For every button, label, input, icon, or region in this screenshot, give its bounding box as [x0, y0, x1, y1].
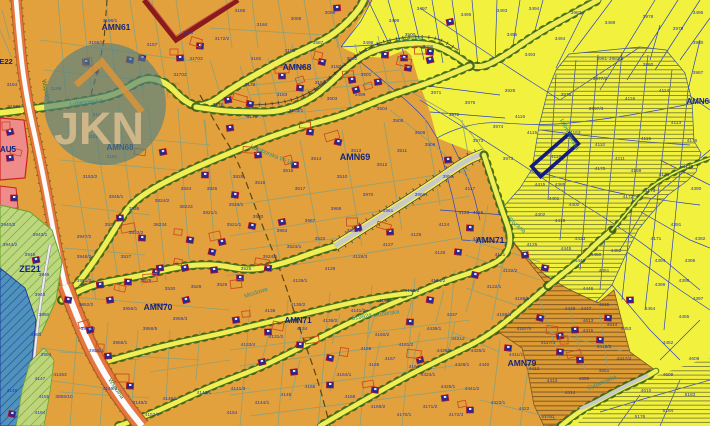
svg-text:4394: 4394 — [655, 258, 666, 264]
svg-text:4110: 4110 — [595, 142, 606, 148]
svg-text:3495: 3495 — [693, 10, 704, 16]
svg-text:3514: 3514 — [311, 156, 322, 162]
svg-text:4160/2: 4160/2 — [375, 332, 390, 338]
svg-text:3164: 3164 — [7, 82, 18, 88]
svg-text:4125: 4125 — [527, 242, 538, 248]
svg-text:3926: 3926 — [505, 88, 516, 94]
svg-text:3952/2: 3952/2 — [79, 302, 94, 308]
svg-text:38234: 38234 — [153, 222, 167, 228]
svg-text:3506: 3506 — [415, 130, 426, 136]
svg-text:4147: 4147 — [35, 376, 46, 382]
svg-text:4615: 4615 — [599, 302, 610, 308]
svg-text:4113: 4113 — [671, 120, 682, 126]
svg-text:3955/10: 3955/10 — [55, 394, 73, 400]
svg-text:3488: 3488 — [605, 20, 616, 26]
svg-text:44212: 44212 — [451, 336, 465, 342]
svg-text:3956/1: 3956/1 — [123, 306, 138, 312]
svg-text:31703: 31703 — [189, 56, 203, 62]
svg-text:3945: 3945 — [25, 252, 36, 258]
svg-text:4169/2: 4169/2 — [371, 404, 386, 410]
svg-text:3183: 3183 — [277, 92, 288, 98]
svg-text:31702: 31702 — [173, 72, 187, 78]
svg-text:4164/2: 4164/2 — [431, 278, 446, 284]
svg-text:4154: 4154 — [227, 410, 238, 416]
svg-text:4171/2: 4171/2 — [423, 404, 438, 410]
svg-text:4449: 4449 — [575, 258, 586, 264]
svg-text:4169: 4169 — [631, 168, 642, 174]
svg-text:4170/1: 4170/1 — [397, 412, 412, 418]
svg-text:4115: 4115 — [527, 130, 538, 136]
svg-text:4124: 4124 — [439, 222, 450, 228]
svg-text:3182: 3182 — [251, 56, 262, 62]
svg-text:4418: 4418 — [555, 218, 566, 224]
svg-text:3997/3: 3997/3 — [589, 106, 604, 112]
svg-text:3523/1: 3523/1 — [287, 244, 302, 250]
svg-text:3086: 3086 — [325, 10, 336, 16]
svg-text:4170: 4170 — [595, 166, 606, 172]
svg-text:4415: 4415 — [535, 182, 546, 188]
svg-text:3940/2: 3940/2 — [1, 222, 16, 228]
svg-text:4161/2: 4161/2 — [399, 342, 414, 348]
svg-text:4111: 4111 — [615, 156, 625, 162]
svg-text:3967: 3967 — [305, 218, 316, 224]
svg-text:4445: 4445 — [561, 246, 572, 252]
svg-text:4115: 4115 — [641, 136, 652, 142]
svg-text:3961: 3961 — [383, 208, 394, 214]
svg-text:4395: 4395 — [685, 258, 696, 264]
svg-text:4118: 4118 — [473, 210, 484, 216]
svg-text:4117: 4117 — [465, 186, 476, 192]
svg-text:3959: 3959 — [443, 174, 454, 180]
svg-text:3530: 3530 — [165, 286, 176, 292]
svg-text:4452: 4452 — [663, 340, 674, 346]
svg-text:3501: 3501 — [361, 72, 372, 78]
svg-text:4116: 4116 — [515, 114, 526, 120]
svg-text:AMN71: AMN71 — [284, 316, 312, 325]
svg-text:4155: 4155 — [39, 394, 50, 400]
svg-text:4448: 4448 — [565, 306, 576, 312]
svg-text:3524/1: 3524/1 — [263, 254, 278, 260]
svg-text:4131/2: 4131/2 — [269, 334, 284, 340]
svg-text:4441/2: 4441/2 — [465, 386, 480, 392]
svg-text:4168/3: 4168/3 — [497, 312, 512, 318]
svg-text:4440: 4440 — [479, 362, 490, 368]
svg-text:3184: 3184 — [257, 22, 268, 28]
svg-text:4125: 4125 — [411, 232, 422, 238]
svg-text:3172/2: 3172/2 — [215, 36, 230, 42]
svg-text:AU5: AU5 — [0, 145, 17, 154]
svg-text:4614: 4614 — [607, 322, 618, 328]
svg-text:3974: 3974 — [493, 124, 504, 130]
svg-text:4146/1: 4146/1 — [163, 396, 178, 402]
svg-text:3157: 3157 — [147, 42, 158, 48]
svg-text:4122/2: 4122/2 — [503, 268, 518, 274]
svg-text:4422: 4422 — [519, 406, 530, 412]
svg-text:4146/2: 4146/2 — [133, 400, 148, 406]
svg-text:3977/2: 3977/2 — [593, 76, 608, 82]
svg-text:3968: 3968 — [331, 206, 342, 212]
svg-text:3962/1: 3962/1 — [347, 228, 362, 234]
svg-text:5183: 5183 — [685, 392, 696, 398]
svg-text:4398: 4398 — [679, 278, 690, 284]
svg-text:3948/2: 3948/2 — [77, 254, 92, 260]
svg-text:4437: 4437 — [447, 312, 458, 318]
svg-text:3494: 3494 — [555, 36, 566, 42]
svg-text:3880: 3880 — [643, 62, 654, 68]
svg-text:4166: 4166 — [305, 384, 316, 390]
svg-text:3517: 3517 — [295, 186, 306, 192]
svg-text:4397: 4397 — [693, 296, 704, 302]
svg-text:3587: 3587 — [313, 40, 324, 46]
svg-text:3980: 3980 — [693, 40, 704, 46]
svg-text:4171: 4171 — [651, 236, 662, 242]
svg-text:3876: 3876 — [465, 100, 476, 106]
svg-text:5184: 5184 — [663, 408, 674, 414]
svg-text:4454: 4454 — [645, 306, 656, 312]
svg-text:AMN79: AMN79 — [508, 358, 537, 368]
svg-text:3495: 3495 — [507, 32, 518, 38]
svg-text:4433: 4433 — [575, 236, 586, 242]
svg-text:3824/2: 3824/2 — [155, 198, 170, 204]
svg-text:3503: 3503 — [327, 96, 338, 102]
svg-text:4141/3: 4141/3 — [231, 386, 246, 392]
svg-text:4148: 4148 — [7, 388, 18, 394]
svg-text:3522: 3522 — [315, 236, 326, 242]
svg-text:3527: 3527 — [121, 254, 132, 260]
svg-text:41453: 41453 — [53, 372, 67, 378]
svg-text:4401: 4401 — [549, 196, 560, 202]
svg-text:4413: 4413 — [547, 378, 558, 384]
svg-text:3521/1: 3521/1 — [227, 222, 242, 228]
svg-text:3088: 3088 — [291, 16, 302, 22]
svg-text:3178: 3178 — [245, 82, 256, 88]
svg-text:4428/1: 4428/1 — [455, 362, 470, 368]
svg-text:3958/4: 3958/4 — [89, 348, 104, 354]
svg-text:3495: 3495 — [461, 12, 472, 18]
svg-text:3176: 3176 — [213, 102, 224, 108]
svg-text:51761: 51761 — [541, 414, 555, 420]
svg-text:4153/2: 4153/2 — [145, 412, 160, 418]
svg-text:3525: 3525 — [241, 266, 252, 272]
svg-text:4439/1: 4439/1 — [437, 348, 452, 354]
svg-text:4167/4: 4167/4 — [517, 326, 532, 332]
svg-text:3509: 3509 — [425, 142, 436, 148]
svg-text:3948: 3948 — [35, 292, 46, 298]
svg-text:4164/1: 4164/1 — [337, 372, 352, 378]
svg-text:3960: 3960 — [415, 192, 426, 198]
svg-text:3970: 3970 — [363, 192, 374, 198]
svg-text:3493: 3493 — [525, 52, 536, 58]
svg-text:3944/2: 3944/2 — [3, 242, 18, 248]
svg-text:4426/1: 4426/1 — [471, 348, 486, 354]
svg-text:4417/4: 4417/4 — [617, 356, 632, 362]
svg-text:3526: 3526 — [217, 282, 228, 288]
svg-text:4172: 4172 — [623, 194, 634, 200]
svg-text:4176: 4176 — [687, 138, 698, 144]
svg-text:4194: 4194 — [35, 410, 46, 416]
svg-text:4126: 4126 — [435, 250, 446, 256]
svg-text:4447: 4447 — [581, 306, 592, 312]
svg-text:4168/5: 4168/5 — [515, 296, 530, 302]
svg-text:3537: 3537 — [105, 222, 116, 228]
svg-text:4116: 4116 — [625, 96, 636, 102]
svg-text:4123: 4123 — [459, 210, 470, 216]
svg-text:4392: 4392 — [695, 236, 706, 242]
svg-text:4141/2: 4141/2 — [351, 308, 366, 314]
svg-text:3971: 3971 — [431, 90, 442, 96]
svg-text:4414: 4414 — [565, 390, 576, 396]
svg-text:3516: 3516 — [255, 180, 266, 186]
svg-text:E22: E22 — [0, 57, 13, 66]
svg-text:4127: 4127 — [383, 242, 394, 248]
svg-text:3497: 3497 — [417, 6, 428, 12]
svg-text:AMN69: AMN69 — [340, 152, 371, 162]
svg-text:3499: 3499 — [389, 18, 400, 24]
svg-text:4608: 4608 — [689, 356, 700, 362]
svg-text:4172/3: 4172/3 — [449, 412, 464, 418]
svg-text:3955/3: 3955/3 — [81, 326, 96, 332]
svg-text:3963: 3963 — [277, 228, 288, 234]
svg-text:JKN: JKN — [54, 103, 144, 154]
svg-text:3821/1: 3821/1 — [203, 210, 218, 216]
svg-text:4452: 4452 — [611, 248, 622, 254]
svg-text:4453: 4453 — [621, 326, 632, 332]
svg-text:3494: 3494 — [529, 6, 540, 12]
svg-text:3515: 3515 — [283, 168, 294, 174]
svg-text:4121: 4121 — [495, 252, 506, 258]
svg-text:3153/2: 3153/2 — [83, 174, 98, 180]
svg-text:3973: 3973 — [473, 138, 484, 144]
svg-text:4164: 4164 — [409, 364, 420, 370]
svg-text:4450: 4450 — [591, 252, 602, 258]
svg-text:4610: 4610 — [641, 388, 652, 394]
svg-text:3951/2: 3951/2 — [77, 278, 92, 284]
svg-text:4167: 4167 — [385, 356, 396, 362]
svg-text:3954: 3954 — [41, 352, 52, 358]
svg-text:3978: 3978 — [643, 14, 654, 20]
svg-text:3958/1: 3958/1 — [113, 340, 128, 346]
svg-text:4143/1: 4143/1 — [197, 390, 212, 396]
svg-text:4117/3: 4117/3 — [541, 340, 556, 346]
svg-text:4451: 4451 — [599, 268, 610, 274]
svg-text:4416/3: 4416/3 — [597, 344, 612, 350]
svg-text:4114: 4114 — [659, 88, 670, 94]
svg-text:3175: 3175 — [247, 114, 258, 120]
svg-text:4136: 4136 — [265, 308, 276, 314]
svg-text:3826: 3826 — [233, 174, 244, 180]
svg-text:4159: 4159 — [361, 346, 372, 352]
svg-text:4165: 4165 — [369, 362, 380, 368]
svg-text:3198: 3198 — [183, 30, 194, 36]
svg-text:3496: 3496 — [363, 40, 374, 46]
svg-text:3512: 3512 — [377, 162, 388, 168]
svg-text:3953: 3953 — [31, 332, 42, 338]
svg-text:4455: 4455 — [679, 314, 690, 320]
svg-text:3947/2: 3947/2 — [77, 234, 92, 240]
svg-text:4651: 4651 — [599, 368, 610, 374]
svg-text:3824: 3824 — [181, 186, 192, 192]
svg-text:4129: 4129 — [325, 266, 336, 272]
svg-text:4438/1: 4438/1 — [427, 326, 442, 332]
svg-text:4168: 4168 — [345, 394, 356, 400]
svg-text:4446: 4446 — [583, 286, 594, 292]
svg-text:4613: 4613 — [583, 318, 594, 324]
svg-text:38223: 38223 — [179, 204, 193, 210]
svg-text:4163/2: 4163/2 — [405, 288, 420, 294]
svg-text:4650: 4650 — [579, 376, 590, 382]
svg-text:3181: 3181 — [315, 80, 326, 86]
svg-text:4142: 4142 — [379, 298, 390, 304]
svg-text:3496: 3496 — [423, 44, 434, 50]
svg-text:3979: 3979 — [673, 26, 684, 32]
svg-text:AMN64: AMN64 — [686, 97, 710, 106]
svg-text:3833/2: 3833/2 — [129, 230, 144, 236]
svg-text:4175: 4175 — [683, 164, 694, 170]
svg-text:4145: 4145 — [281, 392, 292, 398]
svg-text:3845/1: 3845/1 — [109, 194, 124, 200]
svg-text:4400: 4400 — [569, 202, 580, 208]
svg-text:4423/1: 4423/1 — [491, 400, 506, 406]
svg-text:AMN71: AMN71 — [476, 235, 505, 245]
svg-text:AMN68: AMN68 — [283, 62, 312, 72]
svg-text:3973: 3973 — [503, 156, 514, 162]
svg-text:4119: 4119 — [551, 154, 562, 160]
svg-text:3523/1: 3523/1 — [229, 202, 244, 208]
svg-text:4139/2: 4139/2 — [323, 318, 338, 324]
svg-text:3976: 3976 — [561, 92, 572, 98]
svg-text:4402: 4402 — [535, 212, 546, 218]
svg-text:4415: 4415 — [583, 328, 594, 334]
svg-text:3972: 3972 — [449, 112, 460, 118]
svg-text:4425/1: 4425/1 — [441, 384, 456, 390]
svg-text:3536: 3536 — [129, 206, 140, 212]
svg-text:3959/3: 3959/3 — [173, 316, 188, 322]
svg-text:3981-3982/1: 3981-3982/1 — [597, 56, 624, 62]
svg-text:3943/1: 3943/1 — [33, 232, 48, 238]
svg-text:4138/2: 4138/2 — [291, 302, 306, 308]
svg-text:3958/5: 3958/5 — [143, 326, 158, 332]
svg-text:4122/1: 4122/1 — [487, 284, 502, 290]
svg-text:3185: 3185 — [235, 8, 246, 14]
svg-text:3520: 3520 — [253, 214, 264, 220]
svg-text:3505: 3505 — [393, 118, 404, 124]
svg-text:4385: 4385 — [555, 182, 566, 188]
svg-text:4133/4: 4133/4 — [241, 342, 256, 348]
svg-text:4391: 4391 — [671, 222, 682, 228]
svg-text:3187: 3187 — [331, 64, 342, 70]
svg-text:3529: 3529 — [141, 278, 152, 284]
svg-text:3493: 3493 — [497, 8, 508, 14]
svg-text:AMN61: AMN61 — [102, 22, 131, 32]
svg-text:3528: 3528 — [191, 284, 202, 290]
svg-text:3663/1: 3663/1 — [289, 108, 304, 114]
svg-text:4134: 4134 — [297, 326, 308, 332]
svg-text:4144/1: 4144/1 — [255, 400, 270, 406]
svg-text:3825: 3825 — [207, 186, 218, 192]
svg-text:4129/1: 4129/1 — [293, 278, 308, 284]
svg-text:4173: 4173 — [645, 188, 656, 194]
svg-text:3987: 3987 — [693, 70, 704, 76]
svg-text:3502: 3502 — [347, 56, 358, 62]
svg-text:3499: 3499 — [355, 92, 366, 98]
svg-text:AMN70: AMN70 — [144, 302, 173, 312]
svg-text:3180: 3180 — [285, 48, 296, 54]
svg-text:5176: 5176 — [635, 414, 646, 420]
svg-text:4128/3: 4128/3 — [353, 254, 368, 260]
svg-text:4390: 4390 — [691, 186, 702, 192]
svg-text:3504: 3504 — [377, 106, 388, 112]
svg-text:4609: 4609 — [663, 372, 674, 378]
svg-text:3510: 3510 — [337, 174, 348, 180]
svg-text:31624: 31624 — [7, 104, 21, 110]
svg-text:3511: 3511 — [397, 148, 408, 154]
svg-text:ZE21: ZE21 — [19, 264, 41, 274]
svg-text:3950: 3950 — [39, 312, 50, 318]
svg-text:3983: 3983 — [571, 10, 582, 16]
svg-text:4399: 4399 — [655, 282, 666, 288]
svg-text:4174: 4174 — [659, 172, 670, 178]
svg-text:4424/1: 4424/1 — [421, 372, 436, 378]
